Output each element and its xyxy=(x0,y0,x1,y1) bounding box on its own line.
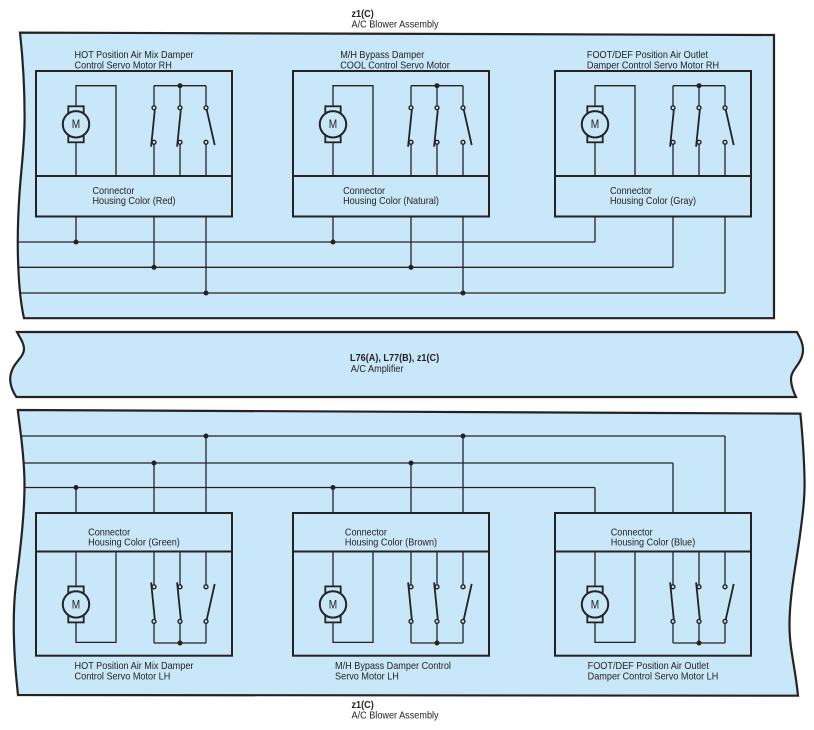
svg-text:Damper Control Servo Motor RH: Damper Control Servo Motor RH xyxy=(587,60,719,71)
svg-text:Housing Color (Red): Housing Color (Red) xyxy=(92,196,175,207)
svg-text:Housing Color (Natural): Housing Color (Natural) xyxy=(343,196,439,207)
svg-text:Housing Color (Brown): Housing Color (Brown) xyxy=(345,538,437,549)
svg-text:M: M xyxy=(329,597,337,611)
svg-text:COOL Control Servo Motor: COOL Control Servo Motor xyxy=(340,60,450,71)
svg-text:M/H Bypass Damper: M/H Bypass Damper xyxy=(340,50,425,61)
svg-text:M: M xyxy=(591,117,599,131)
svg-text:HOT Position Air Mix Damper: HOT Position Air Mix Damper xyxy=(75,50,194,61)
svg-text:A/C Blower Assembly: A/C Blower Assembly xyxy=(352,711,440,722)
svg-text:L76(A), L77(B), z1(C): L76(A), L77(B), z1(C) xyxy=(350,353,439,364)
svg-text:Servo Motor LH: Servo Motor LH xyxy=(335,672,399,683)
svg-text:M: M xyxy=(329,117,337,131)
svg-text:M: M xyxy=(72,117,80,131)
svg-text:FOOT/DEF Position Air Outlet: FOOT/DEF Position Air Outlet xyxy=(587,50,708,61)
svg-text:Control Servo Motor LH: Control Servo Motor LH xyxy=(75,672,171,683)
svg-text:M: M xyxy=(591,597,599,611)
svg-text:A/C Blower Assembly: A/C Blower Assembly xyxy=(352,20,440,31)
svg-text:Housing Color (Green): Housing Color (Green) xyxy=(88,538,180,549)
svg-text:Housing Color (Blue): Housing Color (Blue) xyxy=(611,538,696,549)
svg-text:Control Servo Motor RH: Control Servo Motor RH xyxy=(75,60,172,71)
svg-text:A/C Amplifier: A/C Amplifier xyxy=(351,364,404,375)
svg-text:Housing Color (Gray): Housing Color (Gray) xyxy=(610,196,696,207)
svg-text:M: M xyxy=(72,597,80,611)
svg-text:z1(C): z1(C) xyxy=(352,9,374,20)
svg-text:Damper Control Servo Motor LH: Damper Control Servo Motor LH xyxy=(588,672,719,683)
